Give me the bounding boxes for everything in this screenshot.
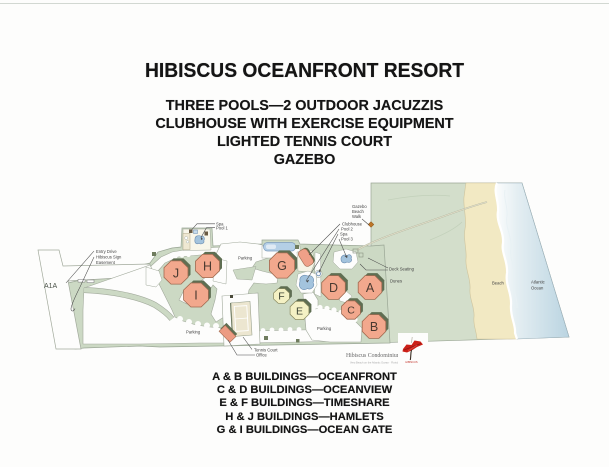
svg-text:Entry Drive: Entry Drive (96, 249, 117, 254)
svg-text:Office: Office (256, 353, 268, 358)
svg-text:H: H (203, 260, 212, 274)
svg-text:Atlantic: Atlantic (531, 280, 545, 285)
svg-text:Beach: Beach (492, 281, 505, 286)
svg-text:J: J (173, 267, 179, 281)
svg-text:Hibiscus Condominium: Hibiscus Condominium (346, 353, 402, 359)
svg-text:Easement: Easement (96, 260, 116, 265)
svg-text:D: D (329, 281, 338, 295)
svg-text:Pool 3: Pool 3 (341, 237, 354, 242)
svg-text:A: A (366, 281, 375, 295)
svg-text:Parking: Parking (238, 256, 253, 261)
svg-text:Ocean: Ocean (531, 286, 544, 291)
svg-text:C: C (347, 305, 355, 317)
svg-text:A1A: A1A (44, 283, 58, 290)
svg-text:Dunes: Dunes (390, 279, 402, 284)
svg-text:Pool 1: Pool 1 (216, 226, 229, 231)
svg-text:HIBISCUS: HIBISCUS (405, 360, 418, 364)
svg-text:G: G (277, 259, 287, 273)
svg-text:Walk: Walk (352, 214, 362, 219)
svg-text:Parking: Parking (186, 330, 201, 335)
svg-text:Deck Seating: Deck Seating (389, 267, 415, 272)
svg-text:Hibiscus Sign: Hibiscus Sign (96, 255, 122, 260)
svg-text:F: F (278, 291, 284, 303)
svg-text:E: E (296, 306, 303, 318)
svg-text:Parking: Parking (317, 326, 332, 331)
svg-text:I: I (194, 289, 197, 303)
svg-text:B: B (370, 320, 378, 334)
